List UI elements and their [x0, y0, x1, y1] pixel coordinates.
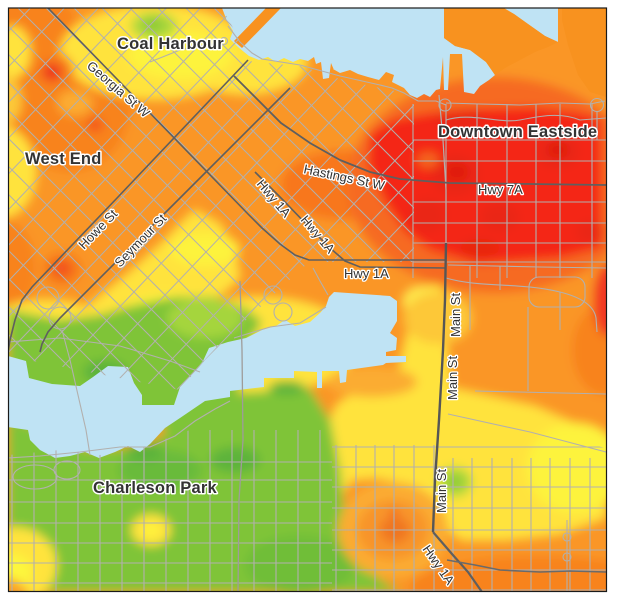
svg-text:Coal Harbour: Coal Harbour — [117, 35, 224, 53]
svg-text:Downtown Eastside: Downtown Eastside — [438, 123, 597, 141]
svg-text:Main St: Main St — [445, 356, 460, 400]
svg-text:Main St: Main St — [434, 469, 449, 513]
svg-text:West End: West End — [25, 150, 101, 168]
svg-text:Charleson Park: Charleson Park — [93, 479, 217, 497]
svg-text:Hwy 7A: Hwy 7A — [478, 182, 523, 197]
svg-text:Hwy 1A: Hwy 1A — [344, 266, 389, 281]
svg-text:Main St: Main St — [448, 293, 463, 337]
